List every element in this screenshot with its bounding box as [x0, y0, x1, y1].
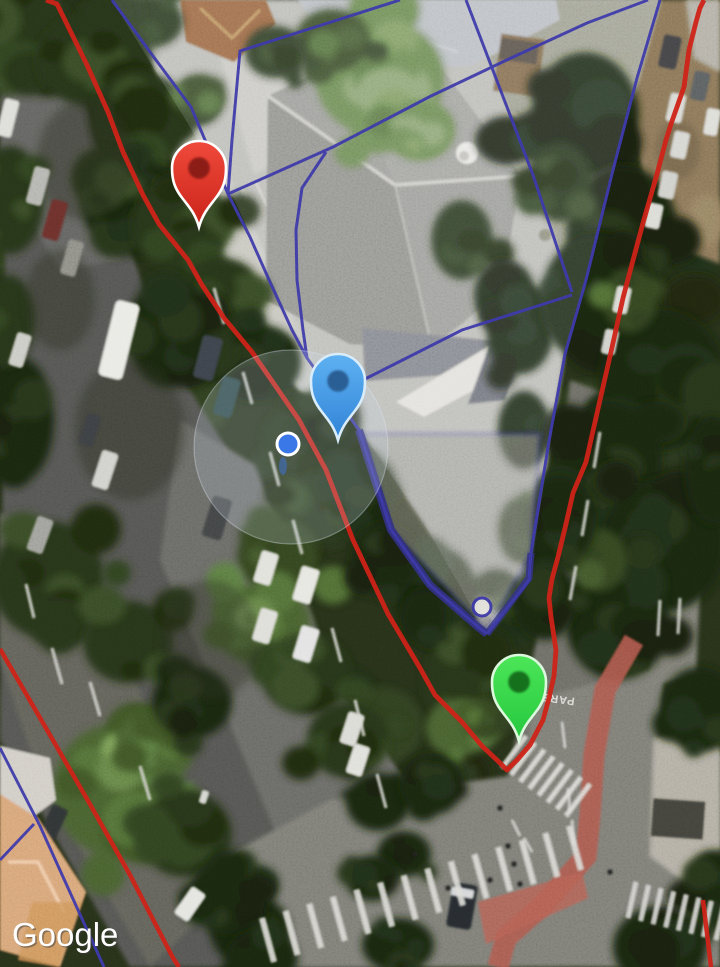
svg-text:Google: Google [12, 916, 118, 953]
